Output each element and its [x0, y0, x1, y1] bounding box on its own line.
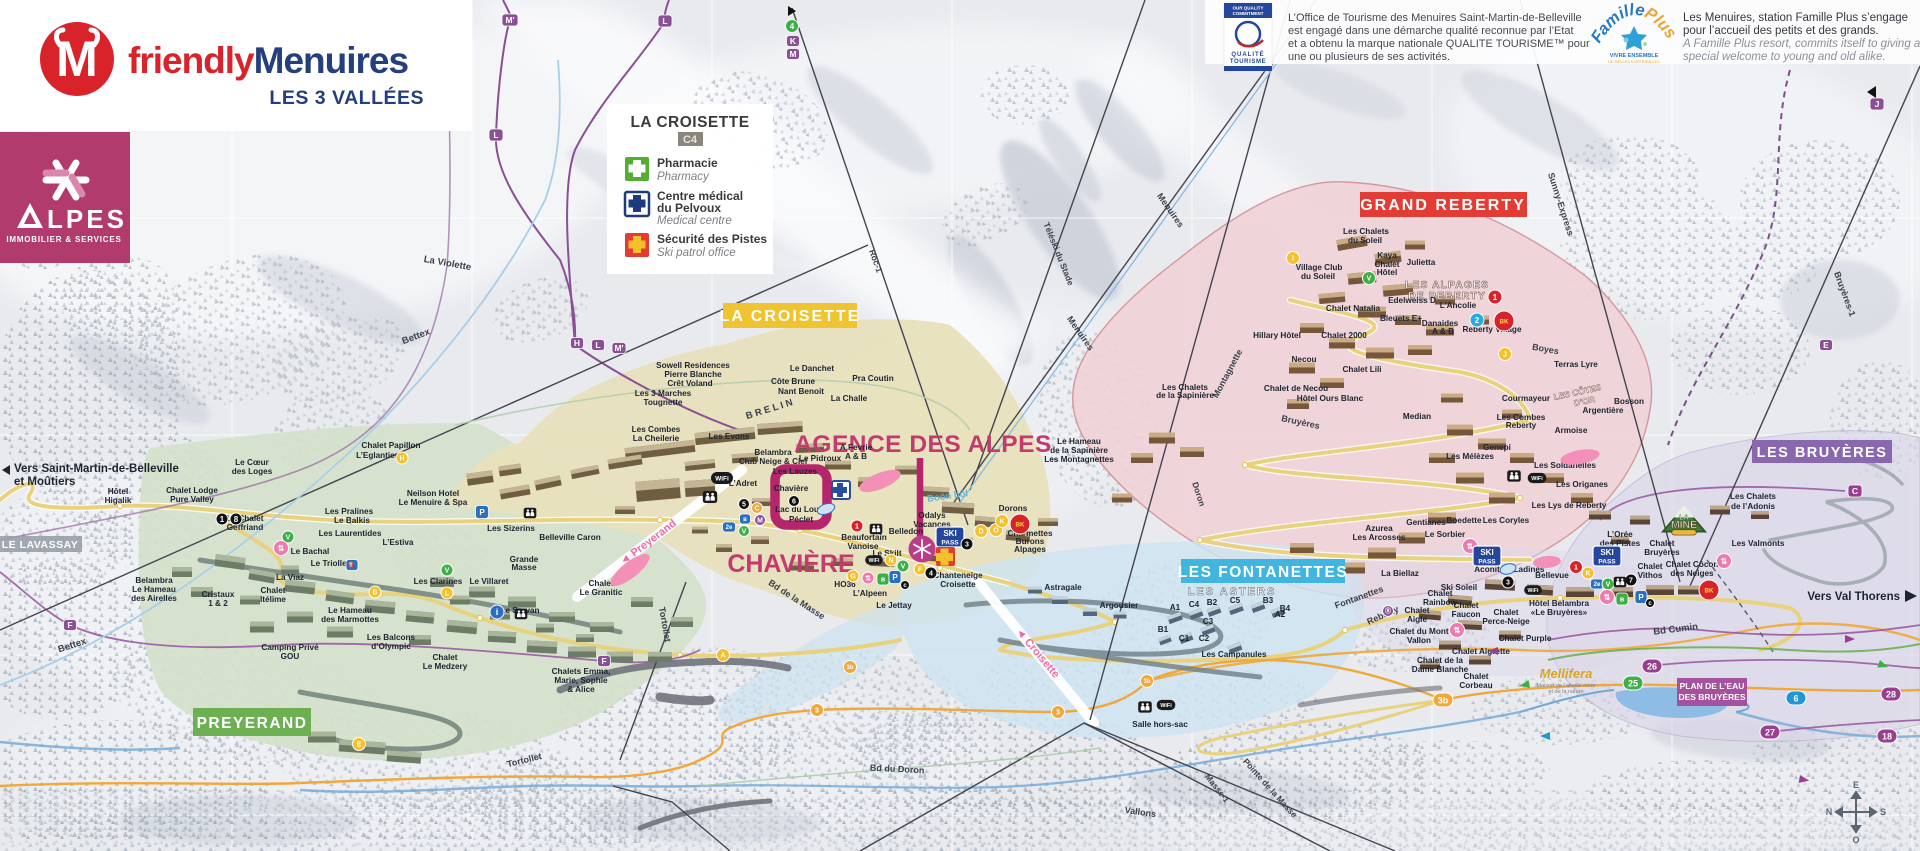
- svg-text:du Soleil: du Soleil: [1348, 236, 1382, 245]
- svg-text:GOU: GOU: [281, 652, 300, 661]
- svg-text:Ⓡ: Ⓡ: [1385, 607, 1391, 615]
- svg-text:B: B: [372, 590, 377, 597]
- svg-text:Chalet: Chalet: [1493, 608, 1518, 617]
- svg-text:PREYERAND: PREYERAND: [197, 715, 308, 732]
- svg-text:BK: BK: [1016, 522, 1025, 529]
- svg-text:La Viaz: La Viaz: [276, 573, 304, 582]
- svg-text:Lac du Lou: Lac du Lou: [775, 505, 819, 514]
- svg-text:6: 6: [1793, 694, 1798, 704]
- svg-text:Les Origanes: Les Origanes: [1556, 480, 1608, 489]
- svg-text:Chalet Côcon: Chalet Côcon: [1666, 560, 1719, 569]
- svg-text:L: L: [595, 340, 600, 350]
- svg-text:«Le Bruyères»: «Le Bruyères»: [1531, 608, 1588, 617]
- svg-text:Chalet Papillon: Chalet Papillon: [361, 441, 420, 450]
- svg-text:Croisette: Croisette: [940, 580, 976, 589]
- svg-text:i: i: [496, 607, 499, 617]
- svg-text:SKI: SKI: [1480, 548, 1493, 557]
- svg-text:Belambra: Belambra: [754, 448, 792, 457]
- svg-text:LA CROISETTE: LA CROISETTE: [630, 114, 749, 131]
- svg-text:Mellifera: Mellifera: [1540, 666, 1593, 681]
- svg-text:Le Cœur: Le Cœur: [235, 458, 269, 467]
- svg-text:Vers Val Thorens: Vers Val Thorens: [1807, 591, 1900, 603]
- svg-text:Les Arcosses: Les Arcosses: [1353, 533, 1406, 542]
- svg-text:P: P: [479, 508, 485, 517]
- svg-text:1: 1: [1574, 565, 1578, 572]
- svg-text:V: V: [445, 568, 450, 575]
- svg-text:B3: B3: [1263, 596, 1274, 605]
- svg-text:G: G: [850, 574, 856, 581]
- svg-text:Chavière: Chavière: [774, 484, 809, 493]
- svg-text:WiFi: WiFi: [1528, 588, 1539, 594]
- svg-text:COMMITMENT: COMMITMENT: [1233, 11, 1264, 16]
- svg-text:1: 1: [1493, 293, 1498, 302]
- svg-text:C4: C4: [1189, 600, 1200, 609]
- svg-text:3: 3: [1056, 710, 1060, 717]
- svg-text:Les Clarines: Les Clarines: [414, 577, 463, 586]
- svg-text:Chalet Lili: Chalet Lili: [1342, 365, 1381, 374]
- svg-text:V: V: [1606, 582, 1611, 589]
- svg-text:Marie, Sophie: Marie, Sophie: [554, 676, 608, 685]
- svg-text:Chalet de Necou: Chalet de Necou: [1264, 384, 1328, 393]
- svg-text:C3: C3: [1203, 617, 1214, 626]
- svg-text:Odalys: Odalys: [918, 511, 946, 520]
- svg-text:7: 7: [1629, 578, 1633, 585]
- svg-text:A Famille Plus resort, commits: A Famille Plus resort, commits itself to…: [1682, 38, 1920, 50]
- svg-text:Chalet: Chalet: [588, 579, 613, 588]
- svg-text:Le Hameau: Le Hameau: [1057, 437, 1101, 446]
- svg-text:Le Pidroux: Le Pidroux: [799, 454, 842, 463]
- svg-text:Bleuets E+: Bleuets E+: [1380, 314, 1422, 323]
- svg-text:S: S: [1880, 807, 1886, 817]
- svg-text:C5: C5: [1230, 596, 1241, 605]
- svg-text:Cristaux: Cristaux: [202, 590, 235, 599]
- svg-text:4: 4: [790, 22, 795, 31]
- svg-text:Les Combes: Les Combes: [632, 425, 681, 434]
- svg-text:Chalet Natalia: Chalet Natalia: [1326, 304, 1381, 313]
- svg-text:Tougnette: Tougnette: [644, 398, 683, 407]
- svg-text:WiFi: WiFi: [1160, 703, 1172, 709]
- svg-text:Le Hameau: Le Hameau: [328, 606, 372, 615]
- svg-text:Le Danchet: Le Danchet: [790, 364, 834, 373]
- svg-text:d’Olympic: d’Olympic: [371, 642, 411, 651]
- svg-text:Higalik: Higalik: [105, 496, 132, 505]
- svg-text:Les 3 Marches: Les 3 Marches: [635, 389, 692, 398]
- svg-text:WiFi: WiFi: [869, 558, 880, 564]
- svg-text:E: E: [1823, 340, 1829, 350]
- svg-text:Chalet: Chalet: [1453, 601, 1478, 610]
- svg-text:Hôtel: Hôtel: [1377, 268, 1397, 277]
- svg-text:B4: B4: [1280, 604, 1291, 613]
- svg-text:26: 26: [1647, 662, 1657, 672]
- svg-text:Le Villaret: Le Villaret: [470, 577, 509, 586]
- svg-text:4: 4: [929, 571, 933, 578]
- svg-text:Les Valmonts: Les Valmonts: [1732, 539, 1785, 548]
- svg-text:K: K: [790, 36, 797, 46]
- svg-text:L’Eglantier: L’Eglantier: [356, 451, 399, 460]
- svg-text:L’Adret: L’Adret: [729, 479, 757, 488]
- svg-text:Chalet: Chalet: [1404, 606, 1429, 615]
- svg-text:SKI: SKI: [1600, 548, 1613, 557]
- svg-text:Vers Saint-Martin-de-Bellevill: Vers Saint-Martin-de-Belleville: [14, 463, 179, 475]
- svg-text:C: C: [1852, 486, 1858, 496]
- svg-text:Chalet 2000: Chalet 2000: [1321, 331, 1367, 340]
- svg-text:Genepi: Genepi: [1483, 443, 1511, 452]
- svg-text:C2: C2: [1199, 634, 1210, 643]
- svg-text:LPES: LPES: [47, 204, 127, 234]
- svg-text:Chalet: Chalet: [1463, 672, 1488, 681]
- svg-text:Club Neige & Ciel: Club Neige & Ciel: [739, 457, 807, 466]
- svg-text:Sowell Residences: Sowell Residences: [656, 361, 730, 370]
- svg-text:Kaya: Kaya: [1377, 251, 1397, 260]
- svg-text:Reberty: Reberty: [1506, 421, 1537, 430]
- svg-text:V: V: [901, 564, 906, 571]
- svg-text:Les Chalets: Les Chalets: [1730, 492, 1776, 501]
- svg-text:DES BRUYÈRES: DES BRUYÈRES: [1678, 692, 1745, 702]
- svg-text:P: P: [1638, 593, 1644, 602]
- svg-text:DE BELLES EXPÉRIENCES: DE BELLES EXPÉRIENCES: [1608, 59, 1660, 64]
- svg-text:F: F: [601, 656, 606, 666]
- svg-text:3b: 3b: [1438, 696, 1449, 706]
- svg-text:E: E: [1853, 780, 1859, 790]
- svg-text:ʙ: ʙ: [743, 517, 747, 523]
- svg-text:Vithos: Vithos: [1638, 571, 1663, 580]
- svg-text:IMMOBILIER & SERVICES: IMMOBILIER & SERVICES: [6, 235, 121, 244]
- svg-text:M: M: [56, 31, 98, 87]
- svg-text:LES BRUYÈRES: LES BRUYÈRES: [1757, 444, 1888, 461]
- svg-text:Le Hameau: Le Hameau: [132, 585, 176, 594]
- svg-text:Dorons: Dorons: [999, 504, 1028, 513]
- svg-text:Les Campanules: Les Campanules: [1201, 650, 1267, 659]
- svg-text:ʙ: ʙ: [881, 576, 886, 583]
- svg-text:P: P: [892, 573, 898, 582]
- svg-text:de la Sapinière: de la Sapinière: [1050, 446, 1108, 455]
- svg-text:Camping Privé: Camping Privé: [261, 643, 319, 652]
- svg-text:1: 1: [855, 524, 859, 531]
- svg-text:E: E: [357, 742, 362, 749]
- svg-text:Masse: Masse: [511, 563, 536, 572]
- svg-text:Chalets Emma,: Chalets Emma,: [552, 667, 611, 676]
- svg-text:Les Laurentides: Les Laurentides: [319, 529, 382, 538]
- svg-text:C1: C1: [1179, 634, 1190, 643]
- svg-text:Les Coryles: Les Coryles: [1483, 516, 1530, 525]
- svg-text:Edelweiss D: Edelweiss D: [1388, 296, 1436, 305]
- svg-text:Argentière: Argentière: [1583, 406, 1624, 415]
- svg-text:special welcome to young and o: special welcome to young and old alike.: [1683, 51, 1886, 63]
- svg-text:SKI: SKI: [943, 529, 956, 538]
- svg-text:O: O: [1852, 835, 1859, 845]
- svg-text:Alpages: Alpages: [1014, 545, 1046, 554]
- svg-text:Hillary Hôtel: Hillary Hôtel: [1253, 331, 1301, 340]
- svg-text:A.Fevrie: A.Fevrie: [840, 443, 873, 452]
- svg-text:Bruyères: Bruyères: [1644, 548, 1680, 557]
- svg-text:M': M': [614, 343, 623, 353]
- svg-text:Belambra: Belambra: [135, 576, 173, 585]
- svg-text:PASS: PASS: [1598, 559, 1616, 566]
- svg-text:Hôtel Belambra: Hôtel Belambra: [1529, 599, 1590, 608]
- svg-text:Les Evons: Les Evons: [709, 432, 750, 441]
- svg-text:et de la nature: et de la nature: [1548, 689, 1583, 695]
- svg-text:I: I: [1292, 256, 1294, 263]
- svg-text:L: L: [662, 16, 667, 26]
- svg-text:Pierre Blanche: Pierre Blanche: [664, 370, 722, 379]
- svg-text:D: D: [978, 529, 983, 536]
- svg-text:GRAND REBERTY: GRAND REBERTY: [1360, 197, 1526, 214]
- svg-text:Les Menuires, station Famille: Les Menuires, station Famille Plus s’eng…: [1683, 12, 1908, 24]
- svg-text:Les Lauzes: Les Lauzes: [773, 467, 818, 476]
- svg-text:J: J: [1503, 352, 1507, 359]
- svg-text:LES FONTANETTES: LES FONTANETTES: [1178, 564, 1348, 581]
- svg-text:L’Ancolie: L’Ancolie: [1440, 301, 1477, 310]
- svg-text:BK: BK: [1705, 588, 1714, 595]
- svg-text:Le Sorbier: Le Sorbier: [1425, 530, 1466, 539]
- svg-text:18: 18: [1882, 732, 1892, 742]
- svg-text:La Challe: La Challe: [831, 394, 868, 403]
- svg-text:QUALITÉ: QUALITÉ: [1231, 50, 1264, 58]
- svg-text:L’Alpeen: L’Alpeen: [853, 589, 887, 598]
- svg-text:MINE: MINE: [1671, 519, 1697, 531]
- svg-text:B1: B1: [1158, 625, 1169, 634]
- svg-text:LE LAVASSAY: LE LAVASSAY: [2, 539, 79, 551]
- svg-text:LES 3 VALLÉES: LES 3 VALLÉES: [269, 86, 424, 109]
- svg-text:L: L: [493, 130, 498, 140]
- svg-text:OUR QUALITY: OUR QUALITY: [1233, 6, 1264, 11]
- svg-text:Les Pralines: Les Pralines: [325, 507, 374, 516]
- svg-text:Belleville Caron: Belleville Caron: [539, 533, 600, 542]
- svg-text:PLAN DE L’EAU: PLAN DE L’EAU: [1680, 681, 1745, 691]
- svg-text:du Pelvoux: du Pelvoux: [657, 201, 721, 215]
- svg-text:F: F: [918, 567, 923, 574]
- svg-text:Beaufortain: Beaufortain: [841, 533, 887, 542]
- svg-text:Ski patrol office: Ski patrol office: [657, 247, 736, 259]
- svg-text:N: N: [1826, 807, 1833, 817]
- svg-text:⇅: ⇅: [1454, 626, 1461, 635]
- svg-text:Chalet Lodge: Chalet Lodge: [166, 486, 218, 495]
- svg-text:Le Balkis: Le Balkis: [334, 516, 370, 525]
- svg-text:Azurea: Azurea: [1365, 524, 1393, 533]
- svg-text:Sécurité des Pistes: Sécurité des Pistes: [657, 232, 767, 246]
- svg-text:Les Balcons: Les Balcons: [367, 633, 416, 642]
- svg-text:3b: 3b: [846, 665, 853, 671]
- svg-text:Nant Benoit: Nant Benoit: [778, 387, 824, 396]
- svg-text:est engagé dans une démarche q: est engagé dans une démarche qualité rec…: [1288, 25, 1574, 37]
- svg-text:Le Menuire & Spa: Le Menuire & Spa: [399, 498, 468, 507]
- svg-text:H: H: [399, 456, 404, 463]
- svg-text:Hôtel: Hôtel: [108, 487, 128, 496]
- svg-text:Astragale: Astragale: [1044, 583, 1082, 592]
- svg-text:Le Jettay: Le Jettay: [876, 601, 912, 610]
- svg-text:PASS: PASS: [1478, 559, 1496, 566]
- svg-text:Chalet: Chalet: [1427, 589, 1452, 598]
- svg-text:Hôtel Ours Blanc: Hôtel Ours Blanc: [1297, 394, 1364, 403]
- svg-text:Neilson Hotel: Neilson Hotel: [407, 489, 459, 498]
- svg-text:Le Triollet: Le Triollet: [311, 559, 350, 568]
- svg-text:Necou: Necou: [1291, 355, 1316, 364]
- svg-text:pour l’accueil des petits et d: pour l’accueil des petits et des grands.: [1683, 25, 1879, 37]
- svg-text:Bosson: Bosson: [1614, 397, 1644, 406]
- svg-text:L: L: [445, 591, 450, 598]
- svg-text:⇅: ⇅: [1721, 557, 1728, 566]
- svg-text:1 & 2: 1 & 2: [208, 599, 228, 608]
- svg-text:Le Granitic: Le Granitic: [580, 588, 623, 597]
- svg-text:2: 2: [1475, 316, 1480, 325]
- svg-text:N: N: [888, 558, 893, 565]
- svg-text:A & B: A & B: [1432, 327, 1454, 336]
- svg-text:A: A: [720, 653, 725, 660]
- svg-text:C: C: [754, 506, 759, 513]
- svg-text:Côte Brune: Côte Brune: [771, 377, 816, 386]
- svg-text:PASS: PASS: [941, 540, 959, 547]
- svg-text:O: O: [993, 528, 999, 535]
- svg-text:Aigle: Aigle: [1407, 615, 1427, 624]
- svg-text:friendlyMenuires: friendlyMenuires: [128, 40, 408, 81]
- svg-text:Julietta: Julietta: [1407, 258, 1436, 267]
- svg-text:et Moûtiers: et Moûtiers: [14, 476, 75, 488]
- svg-text:La Biellaz: La Biellaz: [1381, 569, 1419, 578]
- svg-text:Chalet du Mont: Chalet du Mont: [1389, 627, 1448, 636]
- svg-text:V: V: [742, 529, 747, 536]
- svg-text:Chanteneige: Chanteneige: [933, 571, 983, 580]
- svg-text:Chalet: Chalet: [1649, 539, 1674, 548]
- svg-text:⇅: ⇅: [1604, 593, 1611, 602]
- svg-text:Medical centre: Medical centre: [657, 215, 732, 227]
- svg-text:L’Orée: L’Orée: [1607, 530, 1633, 539]
- svg-text:L’Office de Tourisme des Menui: L’Office de Tourisme des Menuires Saint-…: [1288, 12, 1582, 24]
- svg-text:Corbeau: Corbeau: [1459, 681, 1492, 690]
- svg-text:ʙ: ʙ: [1620, 596, 1625, 603]
- svg-text:27: 27: [1765, 728, 1775, 738]
- svg-text:Les Mélèzes: Les Mélèzes: [1446, 452, 1494, 461]
- svg-text:et a obtenu la marque national: et a obtenu la marque nationale QUALITE …: [1288, 38, 1590, 50]
- svg-text:3: 3: [815, 708, 819, 715]
- svg-text:Geffriand: Geffriand: [227, 523, 263, 532]
- svg-text:Faucon: Faucon: [1451, 610, 1480, 619]
- svg-text:2e: 2e: [726, 525, 733, 531]
- svg-text:28: 28: [1886, 690, 1896, 700]
- svg-text:Chalet Purple: Chalet Purple: [1499, 634, 1552, 643]
- svg-text:Pra Coutin: Pra Coutin: [852, 374, 893, 383]
- svg-text:Chalet: Chalet: [260, 586, 285, 595]
- svg-text:3: 3: [965, 542, 969, 549]
- svg-text:L’Estiva: L’Estiva: [383, 538, 414, 547]
- svg-text:V: V: [1367, 276, 1372, 283]
- svg-text:Chalet Aigrette: Chalet Aigrette: [1452, 647, 1510, 656]
- svg-text:⛽: ⛽: [348, 561, 356, 569]
- svg-text:des Loges: des Loges: [232, 467, 273, 476]
- svg-text:Crêt Voland: Crêt Voland: [667, 379, 712, 388]
- svg-text:Péclet: Péclet: [789, 515, 813, 524]
- svg-text:WiFi: WiFi: [1531, 476, 1543, 482]
- svg-text:Pharmacie: Pharmacie: [657, 156, 718, 170]
- svg-text:Terras Lyre: Terras Lyre: [1554, 360, 1598, 369]
- svg-text:5: 5: [742, 502, 746, 509]
- svg-text:B2: B2: [1207, 598, 1218, 607]
- svg-text:une ou plusieurs de ses activi: une ou plusieurs de ses activités.: [1288, 51, 1450, 63]
- svg-text:Chalet de la: Chalet de la: [1417, 656, 1463, 665]
- svg-text:K: K: [1585, 571, 1590, 578]
- svg-text:Gentianes: Gentianes: [1406, 518, 1446, 527]
- svg-text:TOURISME: TOURISME: [1230, 59, 1266, 65]
- svg-text:Courmayeur: Courmayeur: [1502, 394, 1551, 403]
- svg-text:Vallon: Vallon: [1407, 636, 1431, 645]
- svg-text:Les Sizerins: Les Sizerins: [487, 524, 535, 533]
- svg-text:LA CROISETTE: LA CROISETTE: [720, 308, 861, 325]
- svg-text:Itélime: Itélime: [260, 595, 286, 604]
- svg-text:Le Medzery: Le Medzery: [423, 662, 468, 671]
- svg-text:3: 3: [1506, 580, 1510, 587]
- svg-text:Chalet: Chalet: [432, 653, 457, 662]
- svg-text:CHAVIÈRE: CHAVIÈRE: [727, 549, 854, 578]
- svg-text:Perce-Neige: Perce-Neige: [1482, 617, 1530, 626]
- svg-text:25: 25: [1628, 679, 1638, 689]
- svg-text:& Alice: & Alice: [567, 685, 595, 694]
- svg-text:8: 8: [234, 515, 239, 524]
- svg-text:Les Lys de Reberty: Les Lys de Reberty: [1532, 501, 1607, 510]
- svg-text:Village Club: Village Club: [1296, 263, 1343, 272]
- svg-text:des Marmottes: des Marmottes: [321, 615, 379, 624]
- svg-text:Armoise: Armoise: [1555, 426, 1588, 435]
- svg-text:Pure Valley: Pure Valley: [170, 495, 214, 504]
- svg-text:Le Bachal: Le Bachal: [291, 547, 330, 556]
- svg-text:Les Chalets: Les Chalets: [1343, 227, 1389, 236]
- svg-text:M: M: [789, 49, 796, 59]
- svg-text:de l’Adonis: de l’Adonis: [1731, 502, 1776, 511]
- svg-text:BK: BK: [1500, 319, 1509, 326]
- svg-text:M': M': [505, 15, 514, 25]
- svg-text:A1: A1: [1170, 603, 1181, 612]
- svg-text:⇅: ⇅: [865, 575, 871, 583]
- svg-text:H: H: [574, 338, 580, 348]
- svg-text:Salle hors-sac: Salle hors-sac: [1132, 720, 1188, 729]
- svg-text:⇅: ⇅: [278, 544, 285, 553]
- svg-text:Dame Blanche: Dame Blanche: [1412, 665, 1469, 674]
- svg-text:WiFi: WiFi: [715, 476, 729, 483]
- svg-text:M: M: [757, 518, 763, 525]
- svg-text:Argousier: Argousier: [1100, 601, 1139, 610]
- svg-text:Boedette: Boedette: [1446, 516, 1481, 525]
- svg-text:C4: C4: [683, 134, 698, 146]
- svg-text:V: V: [286, 535, 291, 542]
- svg-text:F: F: [67, 620, 72, 630]
- svg-text:J: J: [1875, 99, 1880, 109]
- svg-text:2e: 2e: [1594, 582, 1601, 588]
- svg-text:du Soleil: du Soleil: [1301, 272, 1335, 281]
- svg-text:1: 1: [220, 515, 225, 524]
- svg-text:des Airelles: des Airelles: [131, 594, 177, 603]
- svg-text:Median: Median: [1403, 412, 1431, 421]
- svg-text:Pharmacy: Pharmacy: [657, 171, 710, 183]
- svg-text:3b: 3b: [1143, 679, 1150, 685]
- svg-text:6: 6: [792, 499, 796, 506]
- svg-text:A & B: A & B: [845, 452, 867, 461]
- svg-text:des Neiges: des Neiges: [1670, 569, 1714, 578]
- svg-text:de la Sapinière: de la Sapinière: [1156, 391, 1214, 400]
- svg-text:La Cheilerie: La Cheilerie: [633, 434, 680, 443]
- svg-text:Chalet: Chalet: [1637, 562, 1662, 571]
- svg-text:Les Montagnettes: Les Montagnettes: [1044, 455, 1114, 464]
- svg-text:K: K: [999, 519, 1004, 526]
